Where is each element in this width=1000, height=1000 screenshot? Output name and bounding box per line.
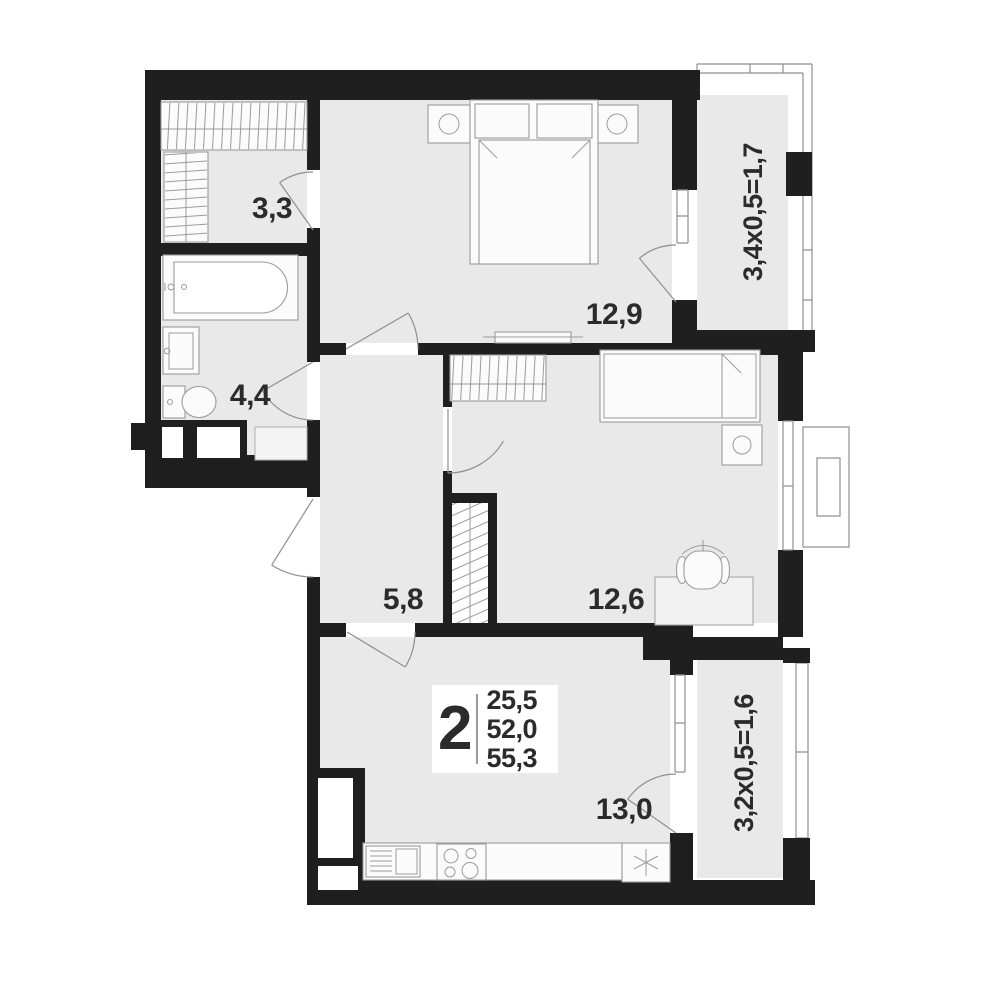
sink <box>163 327 199 374</box>
balcony-top-label: 3,4х0,5=1,7 <box>738 112 768 312</box>
nightstand <box>722 425 762 465</box>
nightstand <box>428 105 470 143</box>
stove <box>437 844 486 880</box>
area-values: 25,5 52,0 55,3 <box>486 686 537 773</box>
wall <box>307 880 815 905</box>
wall <box>307 228 320 362</box>
wall <box>670 833 693 880</box>
room-area-hallway: 5,8 <box>353 585 453 615</box>
shaft-opening <box>318 778 353 858</box>
wall <box>670 660 693 675</box>
wall <box>307 420 320 497</box>
shaft-opening <box>318 866 358 890</box>
wall <box>672 300 697 332</box>
closet-column <box>452 503 488 623</box>
apartment-info-box: 2 25,5 52,0 55,3 <box>432 685 558 773</box>
door-entrance <box>272 499 313 577</box>
washer-niche <box>255 427 307 460</box>
wall <box>497 623 643 637</box>
wardrobe-shelf-unit <box>164 152 208 242</box>
floor-plan-drawing <box>0 0 1000 1000</box>
wall <box>415 623 497 637</box>
wall <box>320 343 346 355</box>
floor-hallway <box>320 355 443 623</box>
area-value: 52,0 <box>486 715 537 744</box>
room-area-kitchen: 13,0 <box>564 795 684 825</box>
wall <box>693 637 783 660</box>
wardrobe-hanging-unit <box>161 102 307 150</box>
total-area-value: 55,3 <box>486 744 537 773</box>
double-bed <box>470 100 598 264</box>
wall-tv <box>483 332 583 343</box>
window-bedroom-balcony <box>677 190 688 243</box>
rooms-count: 2 <box>438 698 470 760</box>
wall <box>672 330 815 352</box>
wall-balcony-pillar <box>786 152 812 196</box>
ac-unit <box>817 458 840 516</box>
vent-duct-opening <box>162 427 183 458</box>
room-area-bathroom: 4,4 <box>200 381 300 411</box>
kitchen-cabinet <box>366 846 420 877</box>
wall <box>307 623 346 637</box>
wall <box>672 100 697 190</box>
room-area-bedroom2: 12,6 <box>556 585 676 615</box>
wall <box>131 423 145 450</box>
living-area-value: 25,5 <box>486 686 537 715</box>
wall <box>778 550 803 637</box>
window-kitchen-balcony <box>675 675 685 772</box>
wall <box>488 503 497 623</box>
ac-basket <box>803 427 849 547</box>
wall <box>320 70 700 100</box>
wall <box>161 243 307 256</box>
room-area-bedroom: 12,9 <box>554 300 674 330</box>
vent-duct-opening <box>197 427 240 458</box>
kitchen-furniture <box>363 843 670 882</box>
washing-machine-spot <box>622 843 670 882</box>
nightstand <box>596 105 638 143</box>
wall <box>778 352 803 421</box>
single-bed <box>600 350 760 422</box>
wall <box>783 838 810 880</box>
wardrobe-bedroom2 <box>450 355 546 401</box>
wall <box>145 70 161 460</box>
bathtub <box>163 255 298 320</box>
info-divider <box>476 694 478 764</box>
floor-plan-canvas: 3,3 4,4 12,9 5,8 12,6 13,0 3,4х0,5=1,7 3… <box>0 0 1000 1000</box>
balcony-bottom-label: 3,2х0,5=1,6 <box>729 663 759 863</box>
glazing-bottom-balcony <box>796 663 808 838</box>
wall <box>783 648 810 663</box>
window-bedroom2 <box>783 421 793 550</box>
wall <box>443 493 497 503</box>
wall <box>307 100 320 170</box>
wall <box>643 623 693 660</box>
wall <box>145 70 320 100</box>
room-area-wardrobe: 3,3 <box>222 194 322 224</box>
